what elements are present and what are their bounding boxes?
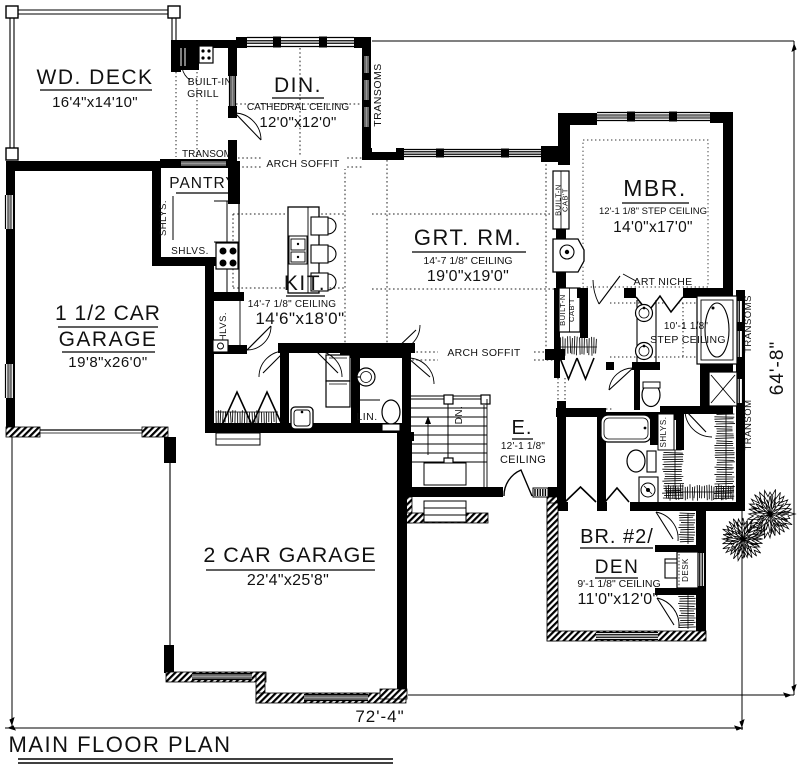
svg-text:PANTRY: PANTRY (169, 175, 236, 192)
svg-text:19'8"x26'0": 19'8"x26'0" (68, 354, 147, 371)
svg-text:72'-4": 72'-4" (355, 707, 404, 726)
svg-text:DN.: DN. (454, 406, 465, 425)
svg-text:LIN.: LIN. (356, 411, 377, 423)
svg-text:CAB'T: CAB'T (567, 298, 576, 322)
svg-text:CEILING: CEILING (500, 454, 546, 466)
svg-text:TRANSOM: TRANSOM (182, 149, 232, 160)
svg-text:22'4"x25'8": 22'4"x25'8" (247, 572, 329, 589)
svg-text:SHLYS.: SHLYS. (158, 200, 169, 236)
svg-text:MBR.: MBR. (623, 175, 687, 201)
svg-text:16'4"x14'10": 16'4"x14'10" (52, 94, 138, 111)
svg-text:BUILT-IN: BUILT-IN (188, 76, 233, 88)
svg-text:TRANSOM: TRANSOM (743, 400, 754, 451)
svg-text:12'-1 1/8": 12'-1 1/8" (501, 441, 545, 452)
svg-text:CATHEDRAL CEILING: CATHEDRAL CEILING (247, 102, 349, 113)
svg-text:14'0"x17'0": 14'0"x17'0" (613, 219, 693, 236)
svg-text:GRILL: GRILL (187, 88, 219, 100)
svg-text:64'-8": 64'-8" (767, 341, 788, 395)
svg-text:BUILT-N: BUILT-N (558, 294, 567, 326)
svg-text:14'-7 1/8" CEILING: 14'-7 1/8" CEILING (423, 255, 512, 267)
svg-text:ARCH SOFFIT: ARCH SOFFIT (266, 158, 340, 170)
svg-text:GARAGE: GARAGE (59, 328, 158, 351)
svg-text:SHLVS.: SHLVS. (171, 246, 209, 257)
svg-text:1 1/2 CAR: 1 1/2 CAR (55, 302, 161, 325)
svg-text:STEP CEILING: STEP CEILING (650, 334, 726, 346)
svg-text:9'-1 1/8" CEILING: 9'-1 1/8" CEILING (577, 578, 660, 590)
svg-text:14'6"x18'0": 14'6"x18'0" (255, 309, 344, 328)
svg-text:CAB'T: CAB'T (561, 188, 570, 212)
svg-text:BR. #2/: BR. #2/ (580, 526, 654, 548)
svg-text:WD. DECK: WD. DECK (37, 66, 154, 89)
svg-text:10'-1 1/8": 10'-1 1/8" (664, 321, 708, 332)
svg-text:DESK: DESK (681, 558, 690, 582)
svg-text:2 CAR GARAGE: 2 CAR GARAGE (203, 543, 376, 567)
svg-text:11'0"x12'0": 11'0"x12'0" (578, 591, 659, 608)
svg-text:TRANSOMS: TRANSOMS (372, 63, 384, 127)
svg-text:DIN.: DIN. (274, 74, 322, 97)
svg-text:ART NICHE: ART NICHE (634, 276, 693, 288)
svg-text:TRANSOMS: TRANSOMS (743, 295, 754, 353)
svg-text:ARCH SOFFIT: ARCH SOFFIT (447, 347, 521, 359)
svg-text:12'-1 1/8" STEP CEILING: 12'-1 1/8" STEP CEILING (599, 206, 707, 217)
svg-text:DEN: DEN (595, 557, 640, 578)
svg-text:12'0"x12'0": 12'0"x12'0" (259, 114, 336, 131)
svg-text:E.: E. (512, 417, 533, 439)
svg-text:19'0"x19'0": 19'0"x19'0" (427, 268, 509, 285)
svg-text:KIT.: KIT. (284, 272, 326, 295)
svg-text:GRT. RM.: GRT. RM. (414, 225, 522, 250)
svg-text:SHLYS.: SHLYS. (659, 417, 668, 448)
svg-text:MAIN FLOOR PLAN: MAIN FLOOR PLAN (9, 732, 232, 757)
